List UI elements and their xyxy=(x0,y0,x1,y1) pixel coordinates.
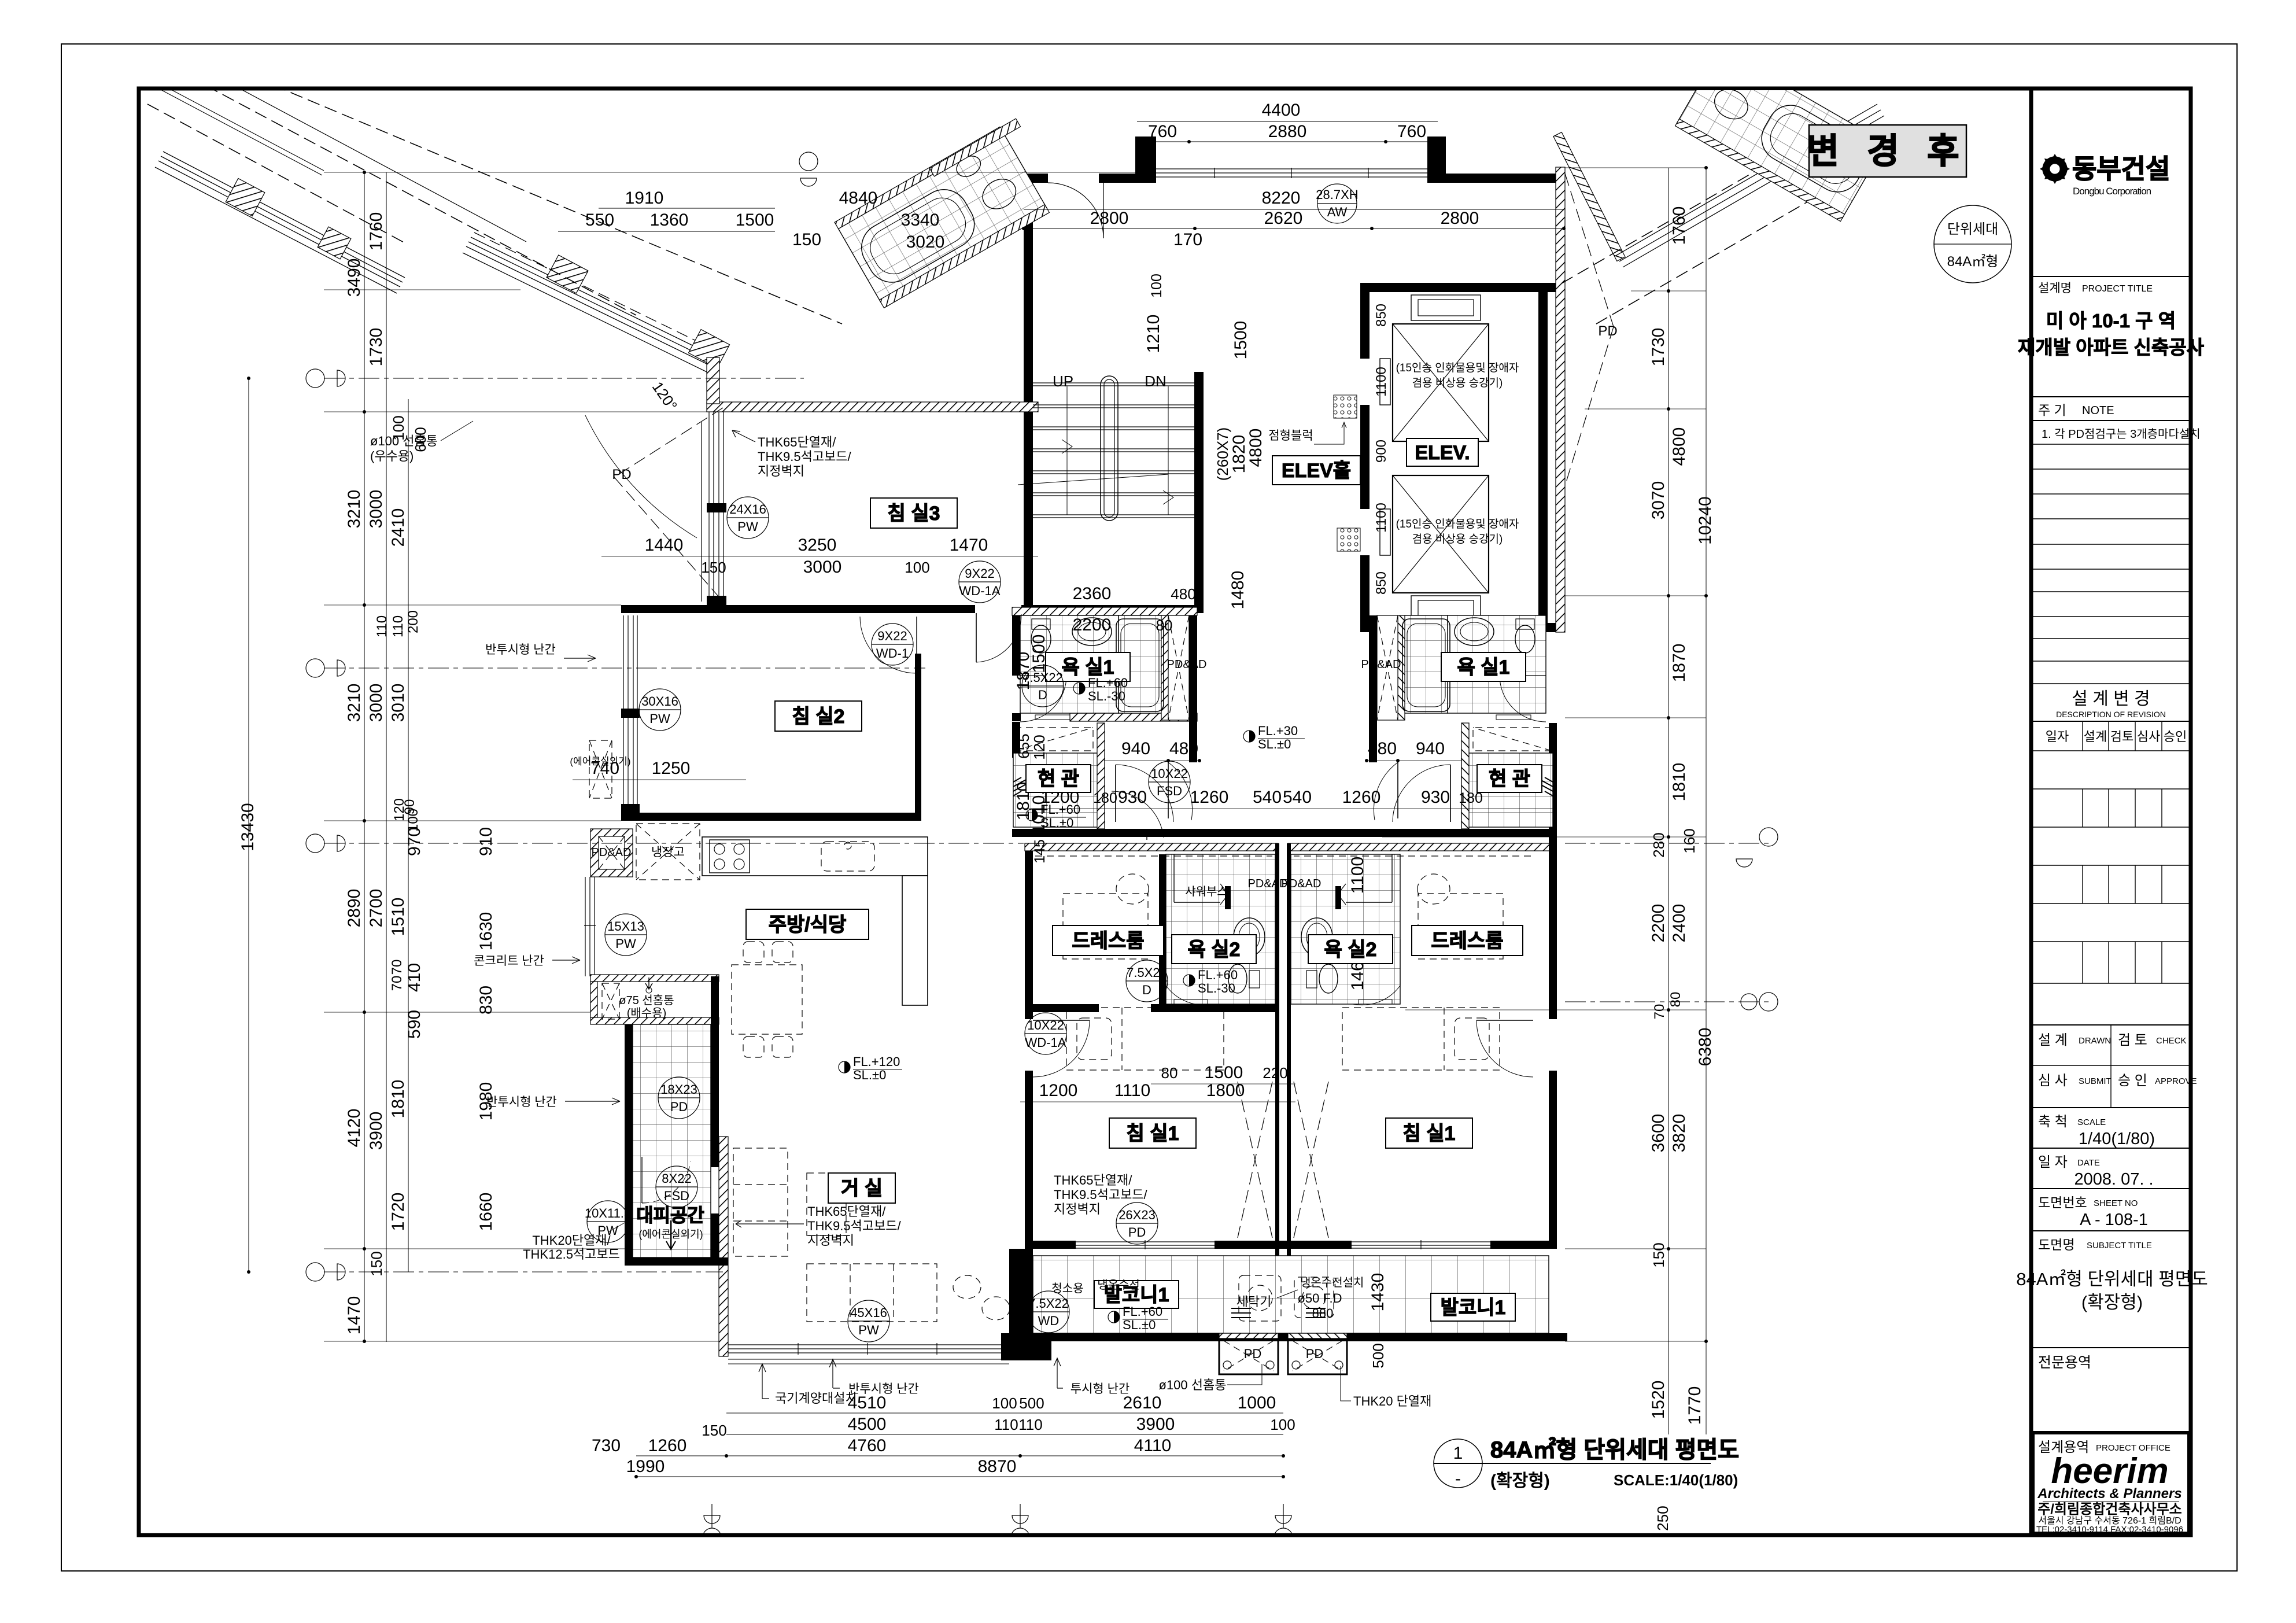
svg-text:600: 600 xyxy=(412,427,429,452)
svg-text:3900: 3900 xyxy=(1136,1415,1175,1434)
svg-text:280: 280 xyxy=(1650,832,1667,857)
svg-text:점형블럭: 점형블럭 xyxy=(1268,429,1313,442)
svg-text:PD: PD xyxy=(612,467,631,482)
svg-text:SUBMIT: SUBMIT xyxy=(2079,1076,2112,1086)
svg-text:3600: 3600 xyxy=(1649,1114,1668,1153)
svg-text:(배수용): (배수용) xyxy=(627,1006,667,1020)
svg-text:1500: 1500 xyxy=(1231,321,1250,360)
svg-text:대피공간: 대피공간 xyxy=(636,1205,704,1226)
svg-text:SHEET NO: SHEET NO xyxy=(2094,1198,2138,1208)
svg-text:DESCRIPTION OF REVISION: DESCRIPTION OF REVISION xyxy=(2056,710,2166,719)
svg-text:84A㎡형 단위세대 평면도: 84A㎡형 단위세대 평면도 xyxy=(2016,1269,2208,1289)
svg-text:80: 80 xyxy=(1161,1064,1178,1082)
svg-text:590: 590 xyxy=(405,1010,424,1039)
svg-text:드레스룸: 드레스룸 xyxy=(1431,930,1503,952)
svg-text:1000: 1000 xyxy=(1238,1393,1276,1412)
svg-text:1250: 1250 xyxy=(652,759,691,778)
svg-text:반투시형 난간: 반투시형 난간 xyxy=(485,643,556,656)
svg-text:DN: DN xyxy=(1145,372,1167,390)
svg-text:8X22: 8X22 xyxy=(662,1171,691,1186)
svg-text:SL.-30: SL.-30 xyxy=(1198,981,1235,995)
svg-text:D: D xyxy=(1142,983,1151,997)
svg-text:반투시형 난간: 반투시형 난간 xyxy=(848,1382,919,1396)
svg-text:PW: PW xyxy=(649,711,670,726)
svg-text:1730: 1730 xyxy=(1649,328,1668,367)
svg-text:1870: 1870 xyxy=(1670,644,1689,683)
svg-text:480: 480 xyxy=(1368,739,1397,758)
svg-text:THK9.5석고보드/: THK9.5석고보드/ xyxy=(758,449,852,464)
svg-text:3000: 3000 xyxy=(367,490,386,529)
svg-text:Architects & Planners: Architects & Planners xyxy=(2037,1486,2181,1502)
svg-text:(에어콘실외기): (에어콘실외기) xyxy=(570,756,630,767)
svg-text:910: 910 xyxy=(477,827,496,856)
svg-text:10X11.5: 10X11.5 xyxy=(585,1206,631,1220)
svg-text:DATE: DATE xyxy=(2077,1158,2100,1168)
svg-text:1810: 1810 xyxy=(389,1080,408,1119)
svg-text:거 실: 거 실 xyxy=(841,1178,883,1200)
svg-text:1500: 1500 xyxy=(1205,1063,1243,1082)
svg-text:SL.±0: SL.±0 xyxy=(1040,816,1073,830)
svg-text:3210: 3210 xyxy=(345,684,364,722)
svg-text:THK65단열재/: THK65단열재/ xyxy=(1054,1173,1132,1187)
svg-text:냉장고: 냉장고 xyxy=(651,846,685,859)
svg-text:160: 160 xyxy=(1681,828,1698,853)
svg-text:일 자: 일 자 xyxy=(2038,1154,2068,1170)
svg-text:1470: 1470 xyxy=(950,536,988,555)
svg-text:550: 550 xyxy=(585,211,614,230)
svg-text:84A㎡형 단위세대 평면도: 84A㎡형 단위세대 평면도 xyxy=(1490,1437,1739,1463)
svg-text:1520: 1520 xyxy=(1649,1381,1668,1419)
svg-text:4400: 4400 xyxy=(1262,101,1301,120)
svg-text:SL.±0: SL.±0 xyxy=(1258,737,1291,751)
svg-text:100: 100 xyxy=(905,559,929,576)
svg-text:2620: 2620 xyxy=(1264,209,1303,228)
svg-text:샤워부스: 샤워부스 xyxy=(1185,885,1228,898)
svg-text:동부건설: 동부건설 xyxy=(2072,154,2170,184)
svg-text:1810: 1810 xyxy=(1670,763,1689,802)
svg-text:2800: 2800 xyxy=(1090,209,1129,228)
svg-text:단위세대: 단위세대 xyxy=(1947,222,1998,237)
svg-text:150: 150 xyxy=(792,230,821,249)
svg-text:3340: 3340 xyxy=(901,211,940,230)
svg-text:욕 실2: 욕 실2 xyxy=(1188,939,1241,961)
svg-text:WD: WD xyxy=(1038,1314,1060,1328)
svg-text:현 관: 현 관 xyxy=(1489,768,1530,790)
svg-text:1/40(1/80): 1/40(1/80) xyxy=(2079,1130,2155,1148)
svg-text:1260: 1260 xyxy=(1190,788,1229,807)
svg-text:2890: 2890 xyxy=(345,889,364,928)
svg-text:검 토: 검 토 xyxy=(2118,1032,2147,1048)
svg-text:7.5X22: 7.5X22 xyxy=(1127,965,1167,980)
svg-text:투시형 난간: 투시형 난간 xyxy=(1071,1382,1129,1396)
svg-text:4800: 4800 xyxy=(1246,429,1265,467)
svg-text:1760: 1760 xyxy=(1670,206,1689,245)
svg-text:930: 930 xyxy=(1118,788,1147,807)
svg-text:200: 200 xyxy=(405,610,421,633)
svg-text:WD-1: WD-1 xyxy=(876,646,909,661)
svg-text:DRAWN: DRAWN xyxy=(2079,1036,2111,1046)
svg-text:7.5X22: 7.5X22 xyxy=(1023,670,1063,685)
svg-text:PROJECT TITLE: PROJECT TITLE xyxy=(2082,284,2153,294)
svg-text:8870: 8870 xyxy=(978,1457,1017,1476)
svg-text:(확장형): (확장형) xyxy=(1490,1471,1550,1491)
svg-text:1730: 1730 xyxy=(367,328,386,367)
svg-text:150: 150 xyxy=(702,1422,726,1439)
svg-text:욕 실1: 욕 실1 xyxy=(1457,656,1510,678)
svg-text:1910: 1910 xyxy=(625,189,664,208)
svg-text:28.7XH: 28.7XH xyxy=(1316,187,1358,202)
svg-text:PD&AD: PD&AD xyxy=(1361,658,1401,671)
svg-text:410: 410 xyxy=(405,963,424,992)
svg-text:150: 150 xyxy=(1650,1242,1667,1267)
svg-text:THK65단열재/: THK65단열재/ xyxy=(758,435,836,449)
svg-text:1110: 1110 xyxy=(1114,1081,1150,1100)
svg-text:UP: UP xyxy=(1053,372,1073,390)
svg-text:100: 100 xyxy=(1149,274,1165,298)
svg-text:3490: 3490 xyxy=(345,259,364,297)
svg-text:PD: PD xyxy=(1128,1225,1146,1240)
svg-text:CHECK: CHECK xyxy=(2156,1036,2187,1046)
svg-text:WD-1A: WD-1A xyxy=(1025,1035,1066,1050)
svg-text:도면번호: 도면번호 xyxy=(2038,1195,2087,1210)
svg-text:냉온수전: 냉온수전 xyxy=(1097,1278,1140,1292)
svg-text:설계명: 설계명 xyxy=(2038,282,2072,295)
svg-text:2610: 2610 xyxy=(1123,1393,1162,1412)
svg-text:TEL:02-3410-9114 FAX:02-3410-9: TEL:02-3410-9114 FAX:02-3410-9096 xyxy=(2036,1525,2183,1535)
svg-text:1260: 1260 xyxy=(1342,788,1381,807)
svg-text:THK9.5석고보드/: THK9.5석고보드/ xyxy=(1054,1187,1148,1202)
svg-text:8220: 8220 xyxy=(1262,189,1301,208)
svg-text:FL.+60: FL.+60 xyxy=(1123,1304,1162,1319)
svg-text:발코니1: 발코니1 xyxy=(1441,1297,1506,1319)
svg-text:FL.+120: FL.+120 xyxy=(853,1054,900,1069)
svg-text:830: 830 xyxy=(477,986,496,1015)
svg-text:THK12.5석고보드: THK12.5석고보드 xyxy=(523,1247,620,1261)
svg-text:850: 850 xyxy=(1374,304,1389,327)
svg-text:NOTE: NOTE xyxy=(2082,404,2114,417)
svg-text:9X22: 9X22 xyxy=(877,629,907,643)
svg-text:2360: 2360 xyxy=(1073,584,1112,603)
svg-text:PD: PD xyxy=(1598,323,1617,339)
svg-text:1990: 1990 xyxy=(626,1457,665,1476)
svg-text:7.5X22: 7.5X22 xyxy=(1028,1296,1069,1311)
svg-text:3210: 3210 xyxy=(345,490,364,529)
svg-text:2800: 2800 xyxy=(1441,209,1479,228)
svg-text:심사: 심사 xyxy=(2137,729,2160,744)
svg-text:PD&AD: PD&AD xyxy=(592,846,632,859)
svg-text:FL.+60: FL.+60 xyxy=(1088,676,1128,690)
svg-text:반투시형 난간: 반투시형 난간 xyxy=(486,1095,557,1109)
svg-text:480: 480 xyxy=(1171,585,1195,603)
svg-text:1430: 1430 xyxy=(1368,1273,1387,1312)
svg-text:100: 100 xyxy=(390,415,407,440)
svg-text:970: 970 xyxy=(405,827,424,856)
svg-text:2400: 2400 xyxy=(1670,904,1689,943)
svg-text:SL.±0: SL.±0 xyxy=(853,1068,886,1082)
svg-text:THK20단열재/: THK20단열재/ xyxy=(532,1233,611,1248)
svg-text:SCALE:1/40(1/80): SCALE:1/40(1/80) xyxy=(1614,1471,1738,1489)
svg-text:1720: 1720 xyxy=(389,1193,408,1231)
svg-text:설 계 변 경: 설 계 변 경 xyxy=(2072,689,2150,709)
svg-text:냉온수전설치: 냉온수전설치 xyxy=(1300,1276,1364,1289)
svg-text:220: 220 xyxy=(1263,1064,1287,1082)
svg-text:70: 70 xyxy=(1652,1004,1667,1020)
svg-text:70: 70 xyxy=(389,976,405,991)
svg-text:침 실1: 침 실1 xyxy=(1127,1123,1179,1145)
svg-text:120: 120 xyxy=(1031,735,1048,759)
svg-text:재개발 아파트 신축공사: 재개발 아파트 신축공사 xyxy=(2018,337,2205,358)
svg-text:84A㎡형: 84A㎡형 xyxy=(1947,254,1999,270)
svg-text:(우수용): (우수용) xyxy=(370,449,414,463)
svg-text:겸용 비상용 승강기): 겸용 비상용 승강기) xyxy=(1412,533,1503,545)
svg-text:침 실2: 침 실2 xyxy=(792,706,845,728)
svg-text:80: 80 xyxy=(1156,617,1173,634)
svg-text:1100: 1100 xyxy=(1348,857,1367,894)
svg-text:180: 180 xyxy=(1093,790,1117,806)
svg-text:150: 150 xyxy=(368,1251,385,1276)
svg-text:1200: 1200 xyxy=(1039,1081,1078,1100)
svg-text:10X22: 10X22 xyxy=(1151,766,1188,781)
svg-text:FSD: FSD xyxy=(664,1189,689,1203)
svg-text:2008. 07. .: 2008. 07. . xyxy=(2074,1170,2153,1189)
svg-text:THK65단열재/: THK65단열재/ xyxy=(807,1204,886,1219)
svg-text:WD-1A: WD-1A xyxy=(959,584,1001,598)
svg-text:PW: PW xyxy=(615,936,636,951)
svg-text:PD: PD xyxy=(1244,1347,1262,1361)
svg-text:4840: 4840 xyxy=(839,189,878,208)
svg-text:Dongbu Corporation: Dongbu Corporation xyxy=(2073,186,2151,197)
svg-text:FL.+60: FL.+60 xyxy=(1198,968,1238,982)
svg-text:2700: 2700 xyxy=(367,889,386,928)
svg-text:PD: PD xyxy=(1306,1347,1324,1361)
svg-text:(260X7): (260X7) xyxy=(1214,427,1231,481)
svg-text:변 경 후: 변 경 후 xyxy=(1807,132,1969,171)
svg-text:1660: 1660 xyxy=(477,1193,496,1231)
svg-text:1760: 1760 xyxy=(367,212,386,251)
svg-text:70: 70 xyxy=(389,960,405,975)
svg-text:심 사: 심 사 xyxy=(2038,1073,2068,1089)
svg-text:(확장형): (확장형) xyxy=(2081,1292,2143,1312)
svg-text:24X16: 24X16 xyxy=(729,502,766,517)
svg-text:욕 실2: 욕 실2 xyxy=(1324,939,1377,961)
svg-text:540: 540 xyxy=(1283,788,1312,807)
svg-text:A - 108-1: A - 108-1 xyxy=(2080,1211,2148,1229)
svg-text:1800: 1800 xyxy=(1206,1081,1245,1100)
svg-text:250: 250 xyxy=(1654,1506,1671,1530)
svg-text:PW: PW xyxy=(737,519,758,534)
svg-text:4120: 4120 xyxy=(345,1109,364,1148)
svg-text:국기계양대설치: 국기계양대설치 xyxy=(775,1391,857,1406)
svg-text:THK9.5석고보드/: THK9.5석고보드/ xyxy=(807,1219,902,1233)
svg-text:3020: 3020 xyxy=(906,233,945,252)
svg-text:FL.+30: FL.+30 xyxy=(1258,724,1298,738)
svg-text:150: 150 xyxy=(701,559,726,576)
svg-text:2200: 2200 xyxy=(1073,615,1112,635)
svg-text:SL.±0: SL.±0 xyxy=(1123,1318,1156,1332)
svg-text:1630: 1630 xyxy=(477,912,496,951)
svg-text:170: 170 xyxy=(1173,230,1202,249)
svg-text:축 척: 축 척 xyxy=(2038,1114,2068,1130)
svg-text:4500: 4500 xyxy=(848,1415,887,1434)
svg-text:1440: 1440 xyxy=(645,536,684,555)
svg-text:1510: 1510 xyxy=(389,898,408,936)
svg-text:3000: 3000 xyxy=(367,684,386,722)
svg-text:1100: 1100 xyxy=(1374,367,1389,397)
svg-text:3820: 3820 xyxy=(1670,1114,1689,1153)
svg-text:1100: 1100 xyxy=(1374,503,1389,533)
svg-text:1. 각 PD점검구는 3개층마다설치: 1. 각 PD점검구는 3개층마다설치 xyxy=(2042,427,2201,441)
svg-text:730: 730 xyxy=(592,1436,621,1455)
svg-text:ELEV홀: ELEV홀 xyxy=(1282,460,1351,482)
svg-text:PD: PD xyxy=(670,1100,688,1114)
svg-text:FL.+60: FL.+60 xyxy=(1040,802,1080,817)
svg-text:PW: PW xyxy=(858,1323,879,1337)
svg-text:940: 940 xyxy=(1416,739,1445,758)
svg-text:승 인: 승 인 xyxy=(2118,1073,2147,1089)
svg-text:1: 1 xyxy=(1453,1444,1463,1463)
svg-text:1260: 1260 xyxy=(648,1436,687,1455)
svg-text:APPROVE: APPROVE xyxy=(2155,1076,2197,1086)
svg-text:145: 145 xyxy=(1032,839,1048,864)
svg-text:SUBJECT TITLE: SUBJECT TITLE xyxy=(2087,1241,2152,1251)
svg-text:현 관: 현 관 xyxy=(1038,768,1079,790)
svg-text:1770: 1770 xyxy=(1685,1386,1704,1425)
svg-text:지정벽지: 지정벽지 xyxy=(807,1233,854,1248)
svg-text:80: 80 xyxy=(1668,992,1684,1008)
svg-text:15X13: 15X13 xyxy=(607,919,644,934)
svg-text:청소용: 청소용 xyxy=(1051,1282,1083,1295)
svg-text:AW: AW xyxy=(1327,205,1348,219)
svg-text:1210: 1210 xyxy=(1144,315,1163,353)
svg-text:D: D xyxy=(1038,688,1047,702)
svg-text:110: 110 xyxy=(374,615,390,637)
svg-text:PD&AD: PD&AD xyxy=(1167,658,1207,671)
svg-text:26X23: 26X23 xyxy=(1119,1208,1156,1222)
svg-text:655: 655 xyxy=(1015,733,1032,758)
svg-text:겸용 비상용 승강기): 겸용 비상용 승강기) xyxy=(1412,377,1503,389)
svg-text:500: 500 xyxy=(1370,1343,1387,1368)
svg-text:850: 850 xyxy=(1374,571,1389,595)
svg-text:설계: 설계 xyxy=(2084,729,2107,744)
svg-text:드레스룸: 드레스룸 xyxy=(1072,930,1144,952)
svg-text:90: 90 xyxy=(402,799,418,815)
svg-text:3010: 3010 xyxy=(389,684,408,722)
svg-text:1360: 1360 xyxy=(650,211,689,230)
svg-text:110: 110 xyxy=(390,615,406,637)
svg-text:2880: 2880 xyxy=(1268,122,1307,141)
svg-text:ø50 F.D: ø50 F.D xyxy=(1297,1291,1342,1305)
svg-text:설 계: 설 계 xyxy=(2038,1032,2068,1048)
svg-text:45X16: 45X16 xyxy=(850,1305,887,1320)
svg-text:880: 880 xyxy=(1312,1306,1334,1320)
svg-text:940: 940 xyxy=(1121,739,1150,758)
svg-text:3250: 3250 xyxy=(798,536,837,555)
svg-text:ELEV.: ELEV. xyxy=(1415,442,1470,464)
svg-text:주방/식당: 주방/식당 xyxy=(769,914,847,936)
svg-text:480: 480 xyxy=(1169,739,1198,758)
svg-text:주 기: 주 기 xyxy=(2038,403,2066,418)
svg-text:(15인승 인화물용및 장애자: (15인승 인화물용및 장애자 xyxy=(1396,362,1519,374)
svg-text:도면명: 도면명 xyxy=(2038,1237,2074,1252)
svg-text:900: 900 xyxy=(1374,440,1389,463)
svg-text:THK20 단열재: THK20 단열재 xyxy=(1353,1394,1431,1408)
svg-text:침 실3: 침 실3 xyxy=(888,503,940,525)
svg-text:SCALE: SCALE xyxy=(2077,1117,2106,1127)
svg-text:콘크리트 난간: 콘크리트 난간 xyxy=(474,954,544,968)
svg-text:승인: 승인 xyxy=(2164,729,2187,744)
svg-text:4760: 4760 xyxy=(848,1436,887,1455)
svg-text:4800: 4800 xyxy=(1670,427,1689,466)
svg-text:heerim: heerim xyxy=(2051,1451,2168,1491)
svg-text:18X23: 18X23 xyxy=(660,1082,697,1097)
svg-text:13430: 13430 xyxy=(238,803,257,851)
svg-text:10240: 10240 xyxy=(1696,496,1715,544)
svg-text:760: 760 xyxy=(1397,122,1426,141)
svg-text:ø100 선홈통: ø100 선홈통 xyxy=(1159,1378,1227,1392)
svg-text:(15인승 인화물용및 장애자: (15인승 인화물용및 장애자 xyxy=(1396,518,1519,530)
svg-text:지정벽지: 지정벽지 xyxy=(758,464,804,478)
svg-text:100: 100 xyxy=(1270,1416,1295,1433)
svg-text:일자: 일자 xyxy=(2046,729,2069,744)
svg-text:1480: 1480 xyxy=(1228,571,1247,610)
svg-text:1500: 1500 xyxy=(736,211,774,230)
svg-text:2410: 2410 xyxy=(389,508,408,547)
svg-text:500: 500 xyxy=(1019,1395,1044,1412)
svg-text:세탁기: 세탁기 xyxy=(1236,1294,1272,1309)
svg-text:PD&AD: PD&AD xyxy=(1282,877,1322,890)
svg-text:6380: 6380 xyxy=(1696,1028,1715,1067)
svg-text:110: 110 xyxy=(1018,1416,1042,1433)
svg-text:-: - xyxy=(1455,1469,1461,1488)
svg-text:9X22: 9X22 xyxy=(965,566,994,581)
svg-text:1470: 1470 xyxy=(345,1296,364,1335)
svg-text:760: 760 xyxy=(1148,122,1177,141)
svg-text:110: 110 xyxy=(994,1416,1018,1433)
svg-text:지정벽지: 지정벽지 xyxy=(1054,1202,1101,1216)
svg-text:3070: 3070 xyxy=(1649,481,1668,520)
svg-text:전문용역: 전문용역 xyxy=(2038,1355,2091,1371)
svg-text:4110: 4110 xyxy=(1134,1436,1172,1455)
svg-text:540: 540 xyxy=(1253,788,1282,807)
svg-text:3900: 3900 xyxy=(367,1112,386,1150)
svg-text:침 실1: 침 실1 xyxy=(1403,1123,1456,1145)
svg-text:3000: 3000 xyxy=(803,558,842,577)
svg-text:930: 930 xyxy=(1421,788,1450,807)
svg-text:SL.-30: SL.-30 xyxy=(1088,689,1125,703)
svg-text:주/희림종합건축사사무소: 주/희림종합건축사사무소 xyxy=(2037,1502,2182,1517)
svg-text:ø75 선홈통: ø75 선홈통 xyxy=(619,994,674,1007)
svg-text:FSD: FSD xyxy=(1157,784,1182,798)
svg-text:검토: 검토 xyxy=(2110,729,2133,744)
svg-text:(에어콘실외기): (에어콘실외기) xyxy=(638,1229,703,1240)
svg-text:30X16: 30X16 xyxy=(641,694,678,709)
svg-text:미 아 10-1 구 역: 미 아 10-1 구 역 xyxy=(2046,310,2176,331)
svg-text:2200: 2200 xyxy=(1649,904,1668,943)
svg-text:100: 100 xyxy=(992,1395,1017,1412)
svg-text:10X22: 10X22 xyxy=(1027,1018,1064,1032)
